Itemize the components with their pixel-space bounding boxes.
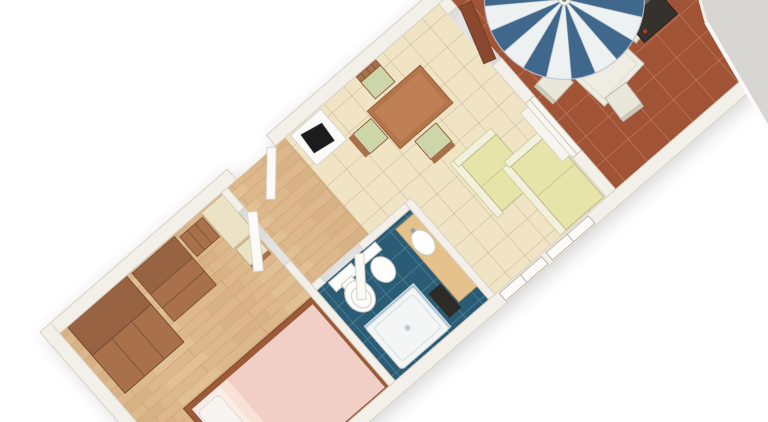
floorplan-svg bbox=[0, 0, 768, 422]
entrance-door bbox=[266, 147, 276, 199]
floorplan-image bbox=[0, 0, 768, 422]
apartment bbox=[40, 0, 768, 422]
bathroom-door bbox=[355, 253, 366, 299]
